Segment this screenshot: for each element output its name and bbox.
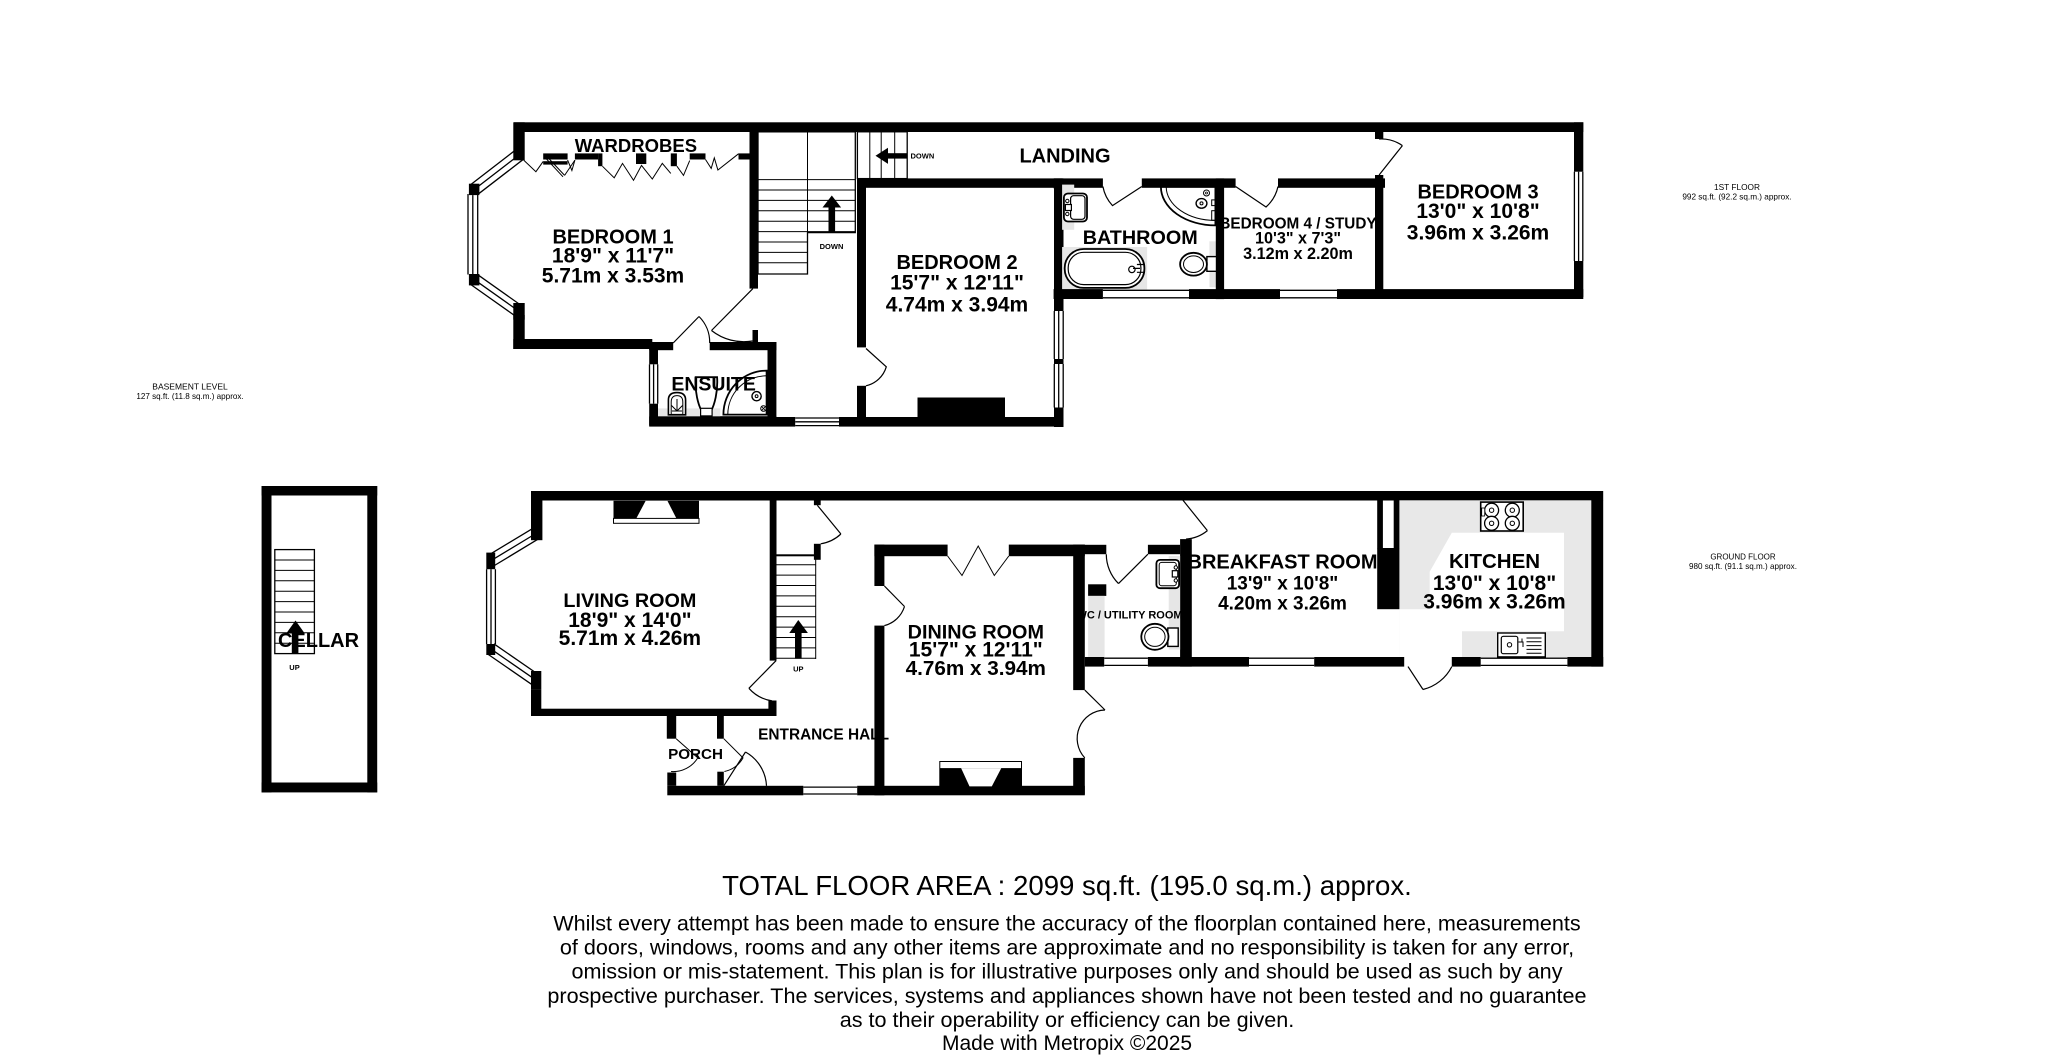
svg-text:15'7" x 12'11": 15'7" x 12'11" <box>890 272 1024 295</box>
svg-text:as to their operability or eff: as to their operability or efficiency ca… <box>840 1007 1295 1032</box>
svg-text:5.71m x 4.26m: 5.71m x 4.26m <box>559 627 701 650</box>
svg-text:3.12m x 2.20m: 3.12m x 2.20m <box>1243 245 1353 263</box>
svg-text:prospective purchaser. The ser: prospective purchaser. The services, sys… <box>547 983 1586 1008</box>
svg-text:980 sq.ft. (91.1 sq.m.) approx: 980 sq.ft. (91.1 sq.m.) approx. <box>1689 562 1797 571</box>
svg-text:4.20m x 3.26m: 4.20m x 3.26m <box>1218 593 1347 614</box>
svg-text:BASEMENT LEVEL: BASEMENT LEVEL <box>152 382 228 392</box>
svg-text:UP: UP <box>793 665 803 674</box>
svg-text:DOWN: DOWN <box>820 242 844 251</box>
svg-text:UP: UP <box>289 663 299 672</box>
svg-text:992 sq.ft. (92.2 sq.m.) approx: 992 sq.ft. (92.2 sq.m.) approx. <box>1682 193 1791 202</box>
svg-text:of doors, windows, rooms and a: of doors, windows, rooms and any other i… <box>560 935 1574 960</box>
svg-text:ENTRANCE HALL: ENTRANCE HALL <box>758 727 889 744</box>
svg-text:WARDROBES: WARDROBES <box>575 135 697 156</box>
svg-text:13'0" x 10'8": 13'0" x 10'8" <box>1416 200 1539 223</box>
svg-text:BREAKFAST ROOM: BREAKFAST ROOM <box>1188 552 1378 574</box>
svg-text:4.74m x 3.94m: 4.74m x 3.94m <box>886 294 1028 317</box>
svg-text:5.71m x 3.53m: 5.71m x 3.53m <box>542 265 684 288</box>
svg-text:KITCHEN: KITCHEN <box>1449 550 1540 573</box>
svg-text:ENSUITE: ENSUITE <box>671 374 756 396</box>
svg-text:BATHROOM: BATHROOM <box>1083 227 1198 249</box>
svg-text:WC / UTILITY ROOM: WC / UTILITY ROOM <box>1076 609 1182 621</box>
svg-text:3.96m x 3.26m: 3.96m x 3.26m <box>1407 222 1549 245</box>
svg-text:PORCH: PORCH <box>668 746 723 763</box>
svg-text:GROUND FLOOR: GROUND FLOOR <box>1710 553 1776 562</box>
svg-text:LANDING: LANDING <box>1019 146 1110 168</box>
svg-text:13'9" x 10'8": 13'9" x 10'8" <box>1227 574 1339 595</box>
svg-text:DOWN: DOWN <box>911 152 935 161</box>
svg-text:127 sq.ft. (11.8 sq.m.) approx: 127 sq.ft. (11.8 sq.m.) approx. <box>136 392 243 401</box>
svg-text:Made with Metropix ©2025: Made with Metropix ©2025 <box>942 1032 1192 1055</box>
svg-text:omission or mis-statement. Thi: omission or mis-statement. This plan is … <box>571 959 1562 984</box>
svg-text:Whilst every attempt has been: Whilst every attempt has been made to en… <box>553 911 1581 936</box>
svg-text:3.96m x 3.26m: 3.96m x 3.26m <box>1423 591 1565 614</box>
svg-text:1ST FLOOR: 1ST FLOOR <box>1714 182 1760 192</box>
svg-text:CELLAR: CELLAR <box>278 630 360 652</box>
svg-text:TOTAL FLOOR AREA : 2099 sq.ft.: TOTAL FLOOR AREA : 2099 sq.ft. (195.0 sq… <box>722 870 1412 901</box>
svg-text:4.76m x 3.94m: 4.76m x 3.94m <box>906 657 1046 680</box>
